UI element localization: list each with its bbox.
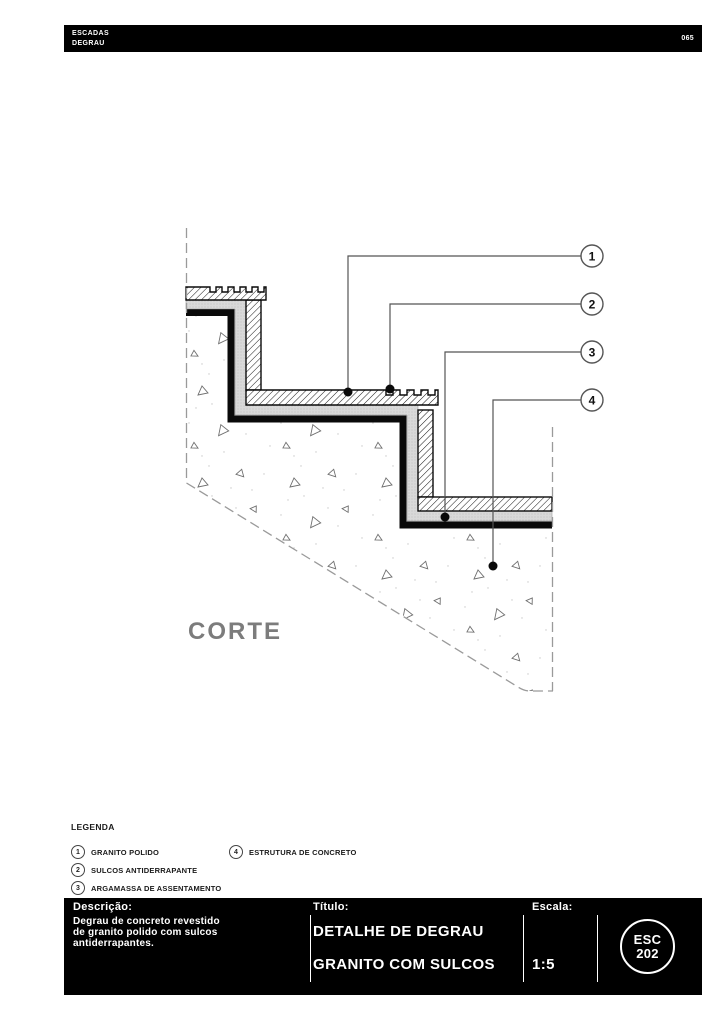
granite-riser-2	[418, 410, 433, 497]
callout-1-number: 1	[589, 250, 596, 264]
leader-line-2	[390, 304, 581, 390]
legend-item-4-number: 4	[229, 845, 243, 859]
legend-item-argamassa-de-assentamento: 3 ARGAMASSA DE ASSENTAMENTO	[71, 881, 221, 895]
legend-item-1-label: GRANITO POLIDO	[91, 848, 159, 857]
callout-1: 1	[581, 245, 603, 267]
description-line-2: de granito polido com sulcos	[73, 927, 220, 938]
granite-tread-2	[246, 390, 438, 405]
legend-item-4-label: ESTRUTURA DE CONCRETO	[249, 848, 357, 857]
sheet-code-stamp: ESC 202	[620, 919, 675, 974]
sheet-code-line-2: 202	[636, 947, 659, 961]
callout-4-number: 4	[589, 394, 596, 408]
legend-item-1-number: 1	[71, 845, 85, 859]
granite-tread-1	[186, 287, 266, 300]
description-line-1: Degrau de concreto revestido	[73, 916, 220, 927]
title-block: Descrição: Degrau de concreto revestido …	[64, 898, 702, 995]
legend-item-granito-polido: 1 GRANITO POLIDO	[71, 845, 159, 859]
legend-title: LEGENDA	[71, 822, 115, 832]
leader-line-1	[348, 256, 581, 393]
granite-riser-1	[246, 300, 261, 390]
detail-sheet-page: { "header": { "line1": "ESCADAS", "line2…	[0, 0, 724, 1024]
leader-line-3	[445, 352, 581, 517]
sheet-title-line-1: DETALHE DE DEGRAU	[313, 923, 484, 940]
legend-item-estrutura-de-concreto: 4 ESTRUTURA DE CONCRETO	[229, 845, 357, 859]
granite-tread-3	[418, 497, 552, 511]
callout-2: 2	[581, 293, 603, 315]
callout-4: 4	[581, 389, 603, 411]
legend-item-2-label: SULCOS ANTIDERRAPANTE	[91, 866, 197, 875]
description-line-3: antiderrapantes.	[73, 938, 220, 949]
legend-item-3-number: 3	[71, 881, 85, 895]
scale-value: 1:5	[532, 956, 555, 973]
title-block-divider-3	[597, 915, 598, 982]
leader-dot-1	[344, 388, 353, 397]
description-text: Degrau de concreto revestido de granito …	[73, 916, 220, 949]
section-label: CORTE	[188, 618, 282, 646]
leader-dot-2	[386, 385, 395, 394]
callout-3-number: 3	[589, 346, 596, 360]
title-label: Título:	[313, 901, 349, 913]
legend-item-3-label: ARGAMASSA DE ASSENTAMENTO	[91, 884, 221, 893]
description-label: Descrição:	[73, 901, 132, 913]
title-block-divider-2	[523, 915, 524, 982]
legend-item-sulcos-antiderrapante: 2 SULCOS ANTIDERRAPANTE	[71, 863, 197, 877]
leader-dot-4	[489, 562, 498, 571]
callout-2-number: 2	[589, 298, 596, 312]
scale-label: Escala:	[532, 901, 573, 913]
sheet-title-line-2: GRANITO COM SULCOS	[313, 956, 495, 973]
legend-item-2-number: 2	[71, 863, 85, 877]
callout-3: 3	[581, 341, 603, 363]
leader-dot-3	[441, 513, 450, 522]
title-block-divider-1	[310, 915, 311, 982]
sheet-code-line-1: ESC	[634, 933, 662, 947]
